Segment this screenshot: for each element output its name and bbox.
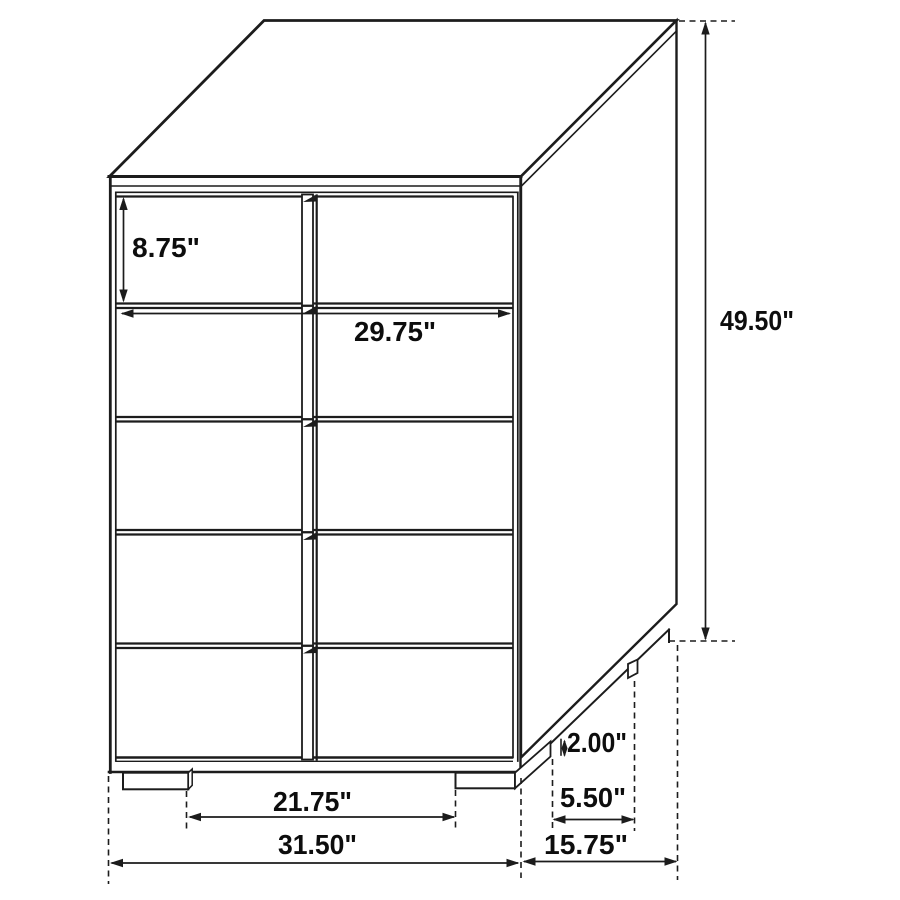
front-foot-spacing-label: 21.75" xyxy=(273,786,352,817)
right-foot xyxy=(456,773,516,789)
overall-depth-label: 15.75" xyxy=(544,829,628,860)
dimension-overall-height: 49.50" xyxy=(669,21,794,641)
drawer-height-label: 8.75" xyxy=(132,232,200,263)
left-foot xyxy=(123,773,188,790)
chest-front-face xyxy=(109,177,521,773)
dimension-foot-height: 2.00" xyxy=(561,727,627,758)
side-foot-spacing-label: 5.50" xyxy=(560,782,626,813)
chest-dimension-diagram: 8.75" 29.75" 49.50" 2.00" 5.50" xyxy=(0,0,900,900)
dimension-front-foot-spacing: 21.75" xyxy=(187,786,456,832)
back-foot-side xyxy=(628,660,638,679)
diagram-canvas: 8.75" 29.75" 49.50" 2.00" 5.50" xyxy=(0,0,900,900)
overall-width-label: 31.50" xyxy=(278,829,357,860)
left-foot-side xyxy=(188,769,192,789)
overall-height-label: 49.50" xyxy=(720,305,794,336)
foot-height-label: 2.00" xyxy=(567,727,627,758)
chest-body xyxy=(109,21,677,790)
drawer-width-label: 29.75" xyxy=(354,316,436,347)
